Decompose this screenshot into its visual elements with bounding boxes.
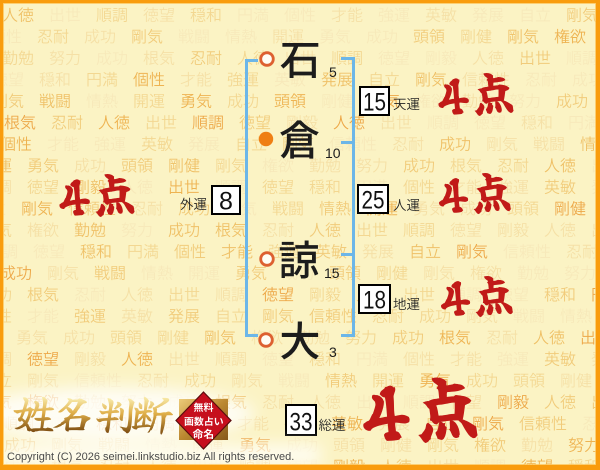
svg-text:15: 15	[324, 265, 340, 281]
svg-text:3: 3	[329, 344, 337, 360]
svg-text:Copyright (C) 2026 seimei.link: Copyright (C) 2026 seimei.linkstudio.biz…	[7, 451, 294, 463]
svg-text:5: 5	[329, 64, 337, 80]
svg-text:15: 15	[363, 89, 386, 117]
svg-text:10: 10	[325, 145, 341, 161]
svg-text:25: 25	[362, 187, 385, 215]
svg-text:33: 33	[290, 409, 313, 437]
svg-text:8: 8	[219, 188, 233, 216]
svg-text:18: 18	[363, 287, 386, 315]
